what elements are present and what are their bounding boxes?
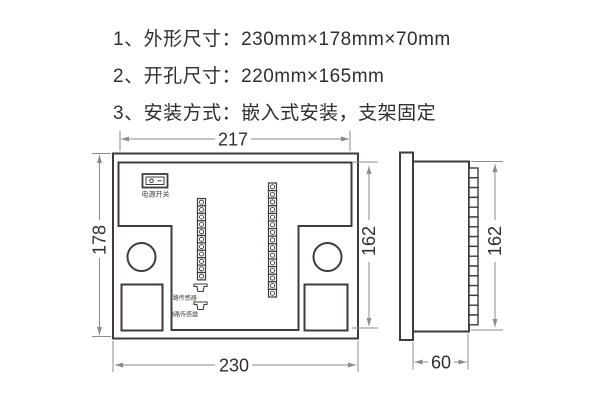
- terminal-cell: [198, 236, 206, 243]
- right-square-cutout: [305, 285, 348, 331]
- dim-value-217: 217: [218, 130, 248, 150]
- terminal-cell: [269, 251, 277, 259]
- left-round-hole: [128, 243, 156, 271]
- switch-off-circle-icon: [150, 179, 154, 183]
- terminal-cell: [469, 237, 478, 247]
- terminal-cell: [269, 221, 277, 229]
- dim-value-230: 230: [219, 356, 249, 376]
- right-round-hole: [314, 243, 342, 271]
- terminal-cell: [269, 183, 277, 191]
- dim-front-width-top: 217: [120, 130, 350, 152]
- power-switch-label: 电源开关: [142, 190, 170, 199]
- terminal-cell: [269, 236, 277, 244]
- terminal-cell: [198, 258, 206, 265]
- terminal-cell: [469, 315, 478, 325]
- terminal-cell: [198, 213, 206, 220]
- terminal-cell: [269, 282, 277, 290]
- terminal-cell: [269, 198, 277, 206]
- terminal-cell: [469, 168, 478, 178]
- terminal-cell: [198, 243, 206, 250]
- front-view: 电源开关 Ⅰ路传感器 Ⅱ路传感器: [113, 154, 358, 339]
- dim-value-162-front: 162: [359, 226, 379, 256]
- dim-value-60: 60: [431, 353, 451, 373]
- front-right-terminal-strip: [269, 183, 277, 297]
- terminal-cell: [269, 274, 277, 282]
- left-square-cutout: [122, 285, 163, 331]
- terminal-cell: [198, 199, 206, 206]
- dim-value-162-side: 162: [485, 226, 505, 256]
- terminal-cell: [469, 227, 478, 237]
- terminal-cell: [469, 286, 478, 296]
- terminal-cell: [269, 191, 277, 199]
- dim-front-width-bottom: 230: [113, 341, 358, 376]
- terminal-cell: [469, 256, 478, 266]
- terminal-cell: [269, 229, 277, 237]
- side-terminal-stack: [469, 168, 478, 325]
- sensor-connectors: Ⅰ路传感器 Ⅱ路传感器: [171, 284, 207, 319]
- side-front-bezel: [400, 153, 413, 341]
- terminal-cell: [269, 213, 277, 221]
- terminal-cell: [198, 221, 206, 228]
- terminal-cell: [198, 250, 206, 257]
- terminal-cell: [198, 206, 206, 213]
- terminal-cell: [269, 267, 277, 275]
- terminal-cell: [469, 295, 478, 305]
- terminal-cell: [198, 265, 206, 272]
- dimension-drawing: 电源开关 Ⅰ路传感器 Ⅱ路传感器: [0, 0, 600, 400]
- sensor-plug-1-icon: [194, 284, 207, 292]
- sensor-plug-2-icon: [194, 302, 207, 310]
- terminal-cell: [469, 266, 478, 276]
- terminal-cell: [198, 273, 206, 280]
- dim-value-178: 178: [90, 225, 110, 255]
- terminal-cell: [269, 259, 277, 267]
- terminal-cell: [469, 305, 478, 315]
- power-switch: 电源开关: [142, 174, 170, 199]
- dim-side-depth-bottom: 60: [413, 334, 468, 373]
- side-body: [413, 162, 469, 332]
- sensor-channel2-label: Ⅱ路传感器: [171, 311, 198, 319]
- installation-drawing-page: 1、外形尺寸：230mm×178mm×70mm 2、开孔尺寸：220mm×165…: [0, 0, 600, 400]
- dim-front-height-left: 178: [90, 154, 112, 337]
- front-left-terminal-strip: [198, 199, 206, 280]
- terminal-cell: [469, 217, 478, 227]
- terminal-cell: [269, 206, 277, 214]
- terminal-cell: [269, 244, 277, 252]
- terminal-cell: [469, 188, 478, 198]
- terminal-cell: [269, 289, 277, 297]
- side-view: [400, 153, 478, 341]
- terminal-cell: [469, 276, 478, 286]
- sensor-channel1-label: Ⅰ路传感器: [171, 294, 197, 302]
- terminal-cell: [469, 197, 478, 207]
- terminal-cell: [469, 178, 478, 188]
- terminal-cell: [469, 207, 478, 217]
- dim-front-height-right: 162: [352, 162, 379, 328]
- terminal-cell: [469, 246, 478, 256]
- terminal-cell: [198, 228, 206, 235]
